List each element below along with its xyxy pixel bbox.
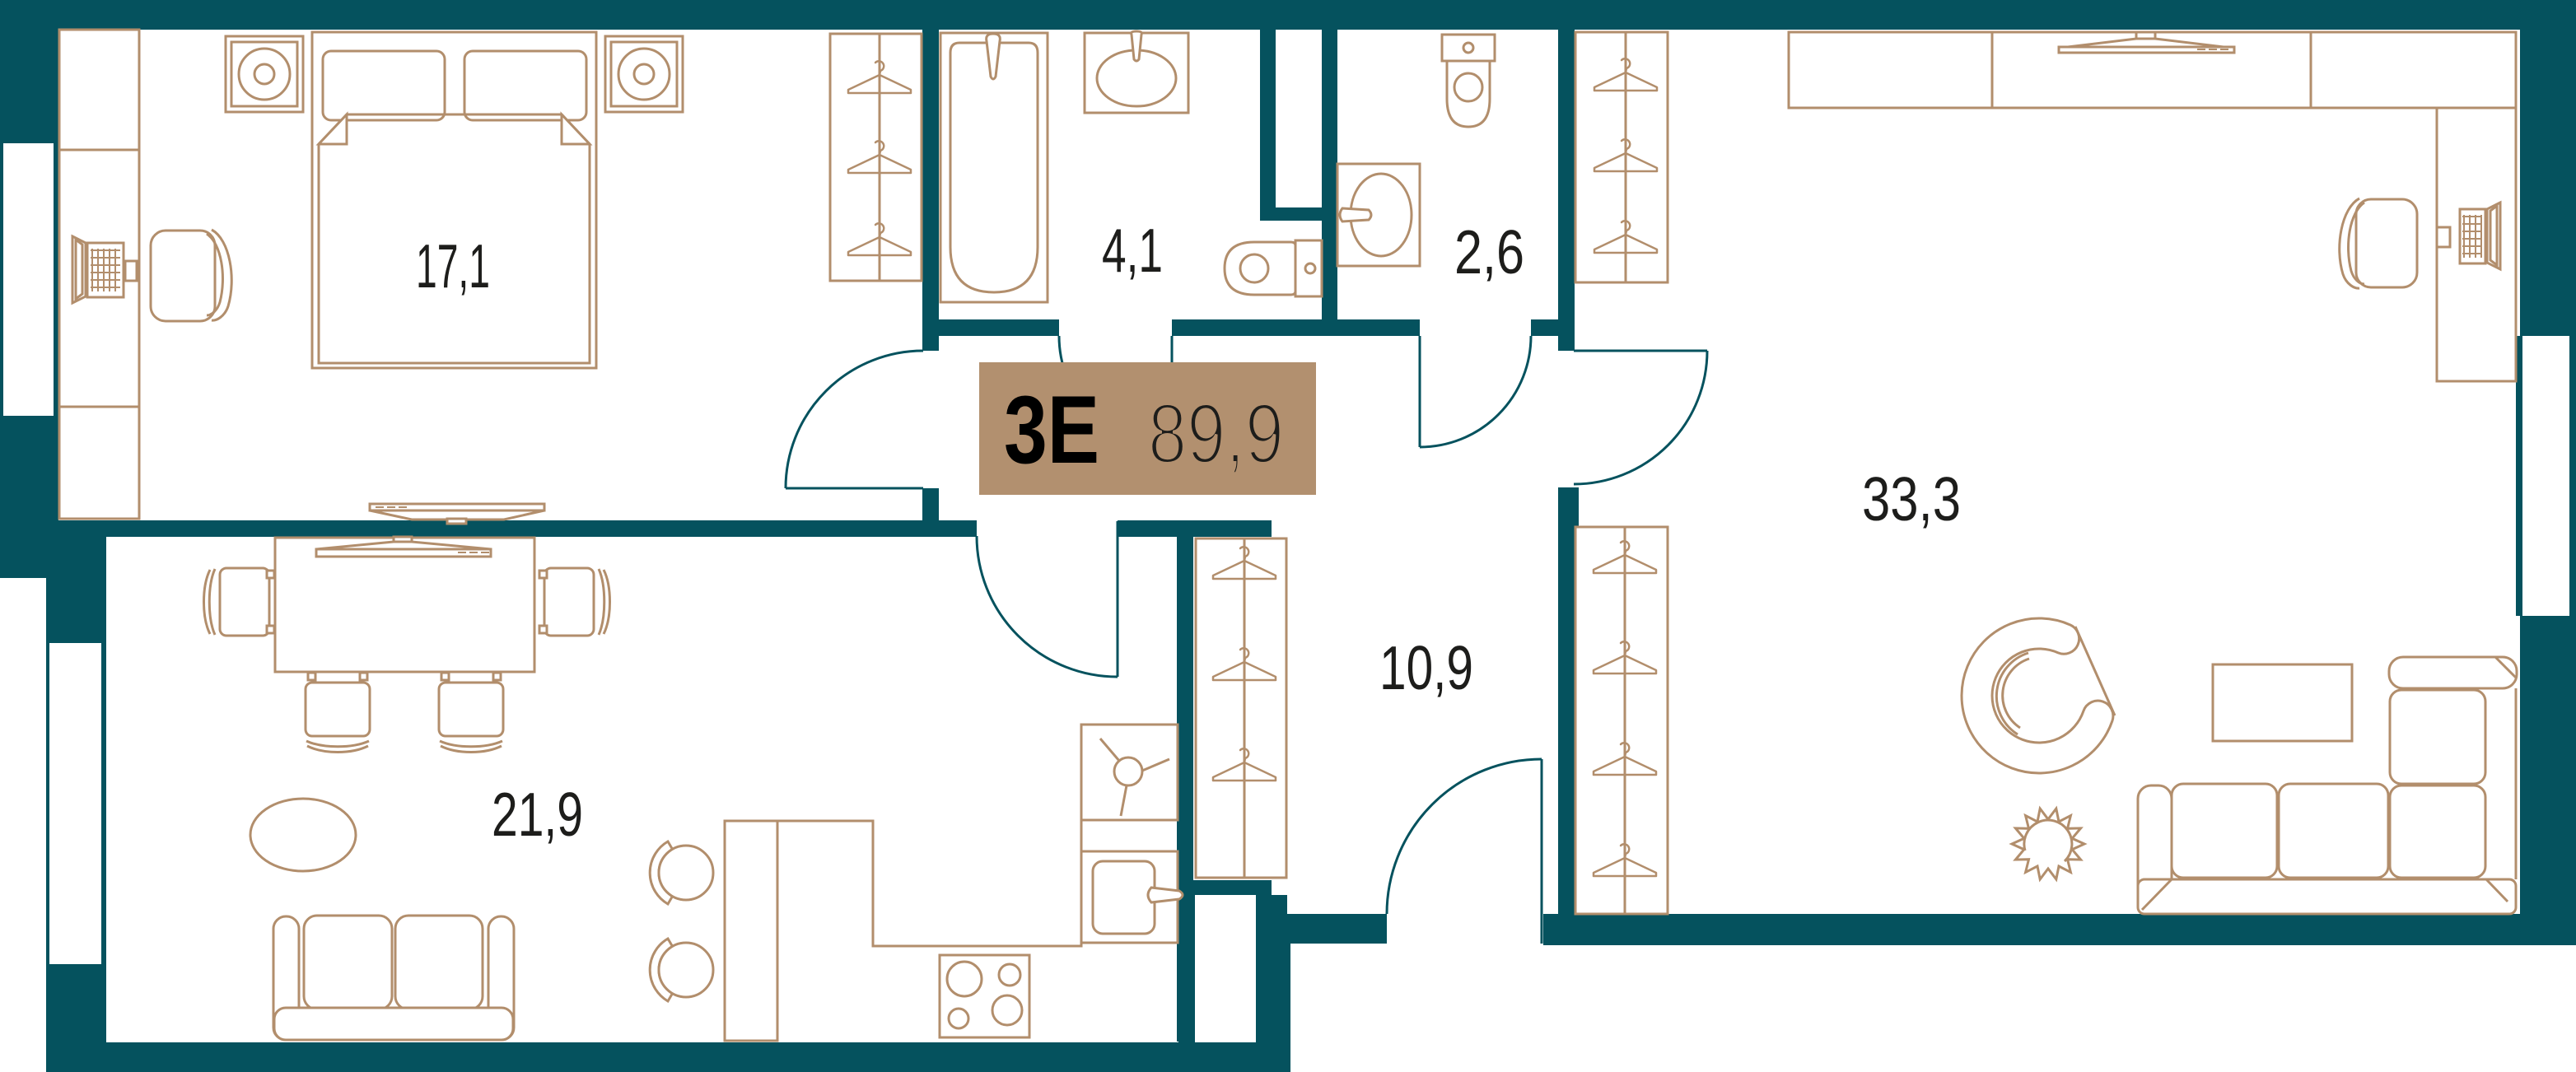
svg-text:89,9: 89,9 xyxy=(1148,386,1284,481)
svg-text:33,3: 33,3 xyxy=(1862,464,1961,534)
svg-text:21,9: 21,9 xyxy=(492,780,583,849)
svg-text:4,1: 4,1 xyxy=(1102,216,1163,285)
svg-text:10,9: 10,9 xyxy=(1379,633,1473,702)
svg-text:3Е: 3Е xyxy=(1004,375,1099,483)
svg-text:2,6: 2,6 xyxy=(1454,217,1524,287)
svg-text:17,1: 17,1 xyxy=(416,231,490,301)
